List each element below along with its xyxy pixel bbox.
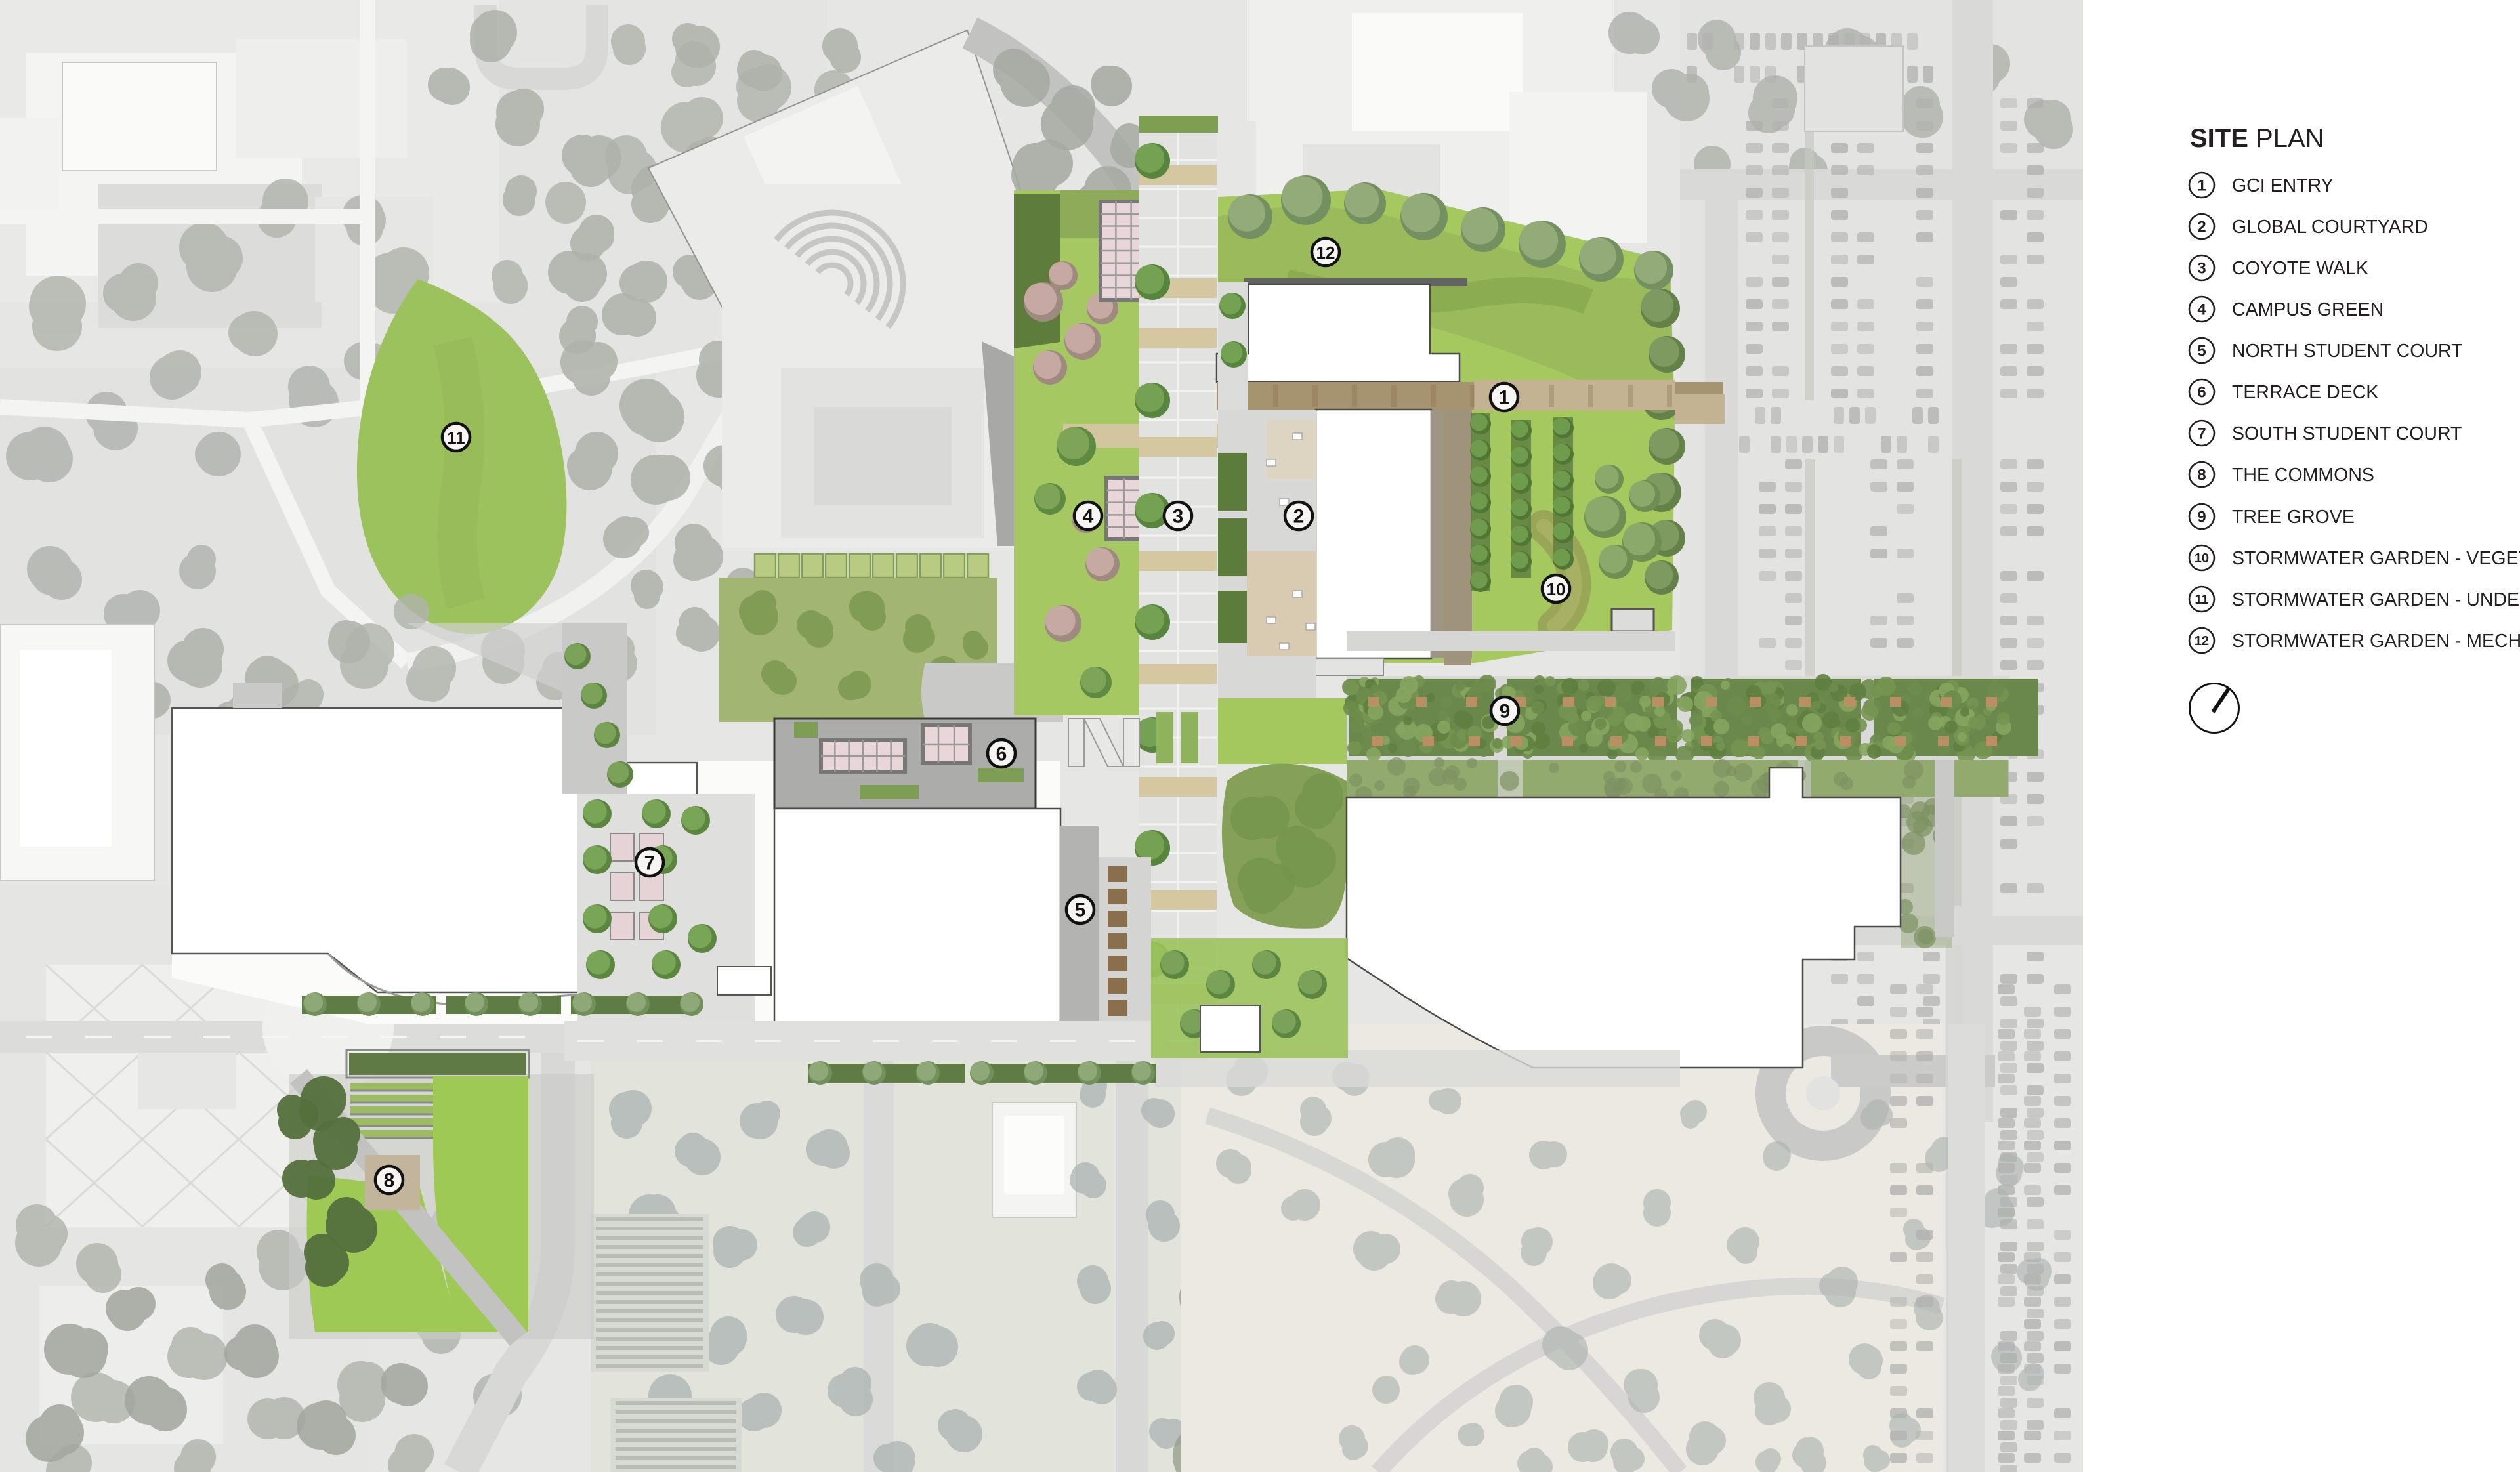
svg-text:7: 7 bbox=[2197, 425, 2206, 443]
svg-text:TERRACE DECK: TERRACE DECK bbox=[2232, 382, 2378, 403]
svg-text:GCI ENTRY: GCI ENTRY bbox=[2232, 175, 2334, 196]
svg-text:9: 9 bbox=[2197, 509, 2206, 526]
svg-text:STORMWATER GARDEN - VEGETATED: STORMWATER GARDEN - VEGETATED bbox=[2232, 548, 2520, 569]
svg-text:7: 7 bbox=[644, 852, 656, 874]
svg-text:10: 10 bbox=[2194, 551, 2209, 566]
svg-text:4: 4 bbox=[1083, 506, 1094, 528]
svg-text:3: 3 bbox=[2197, 260, 2206, 278]
svg-text:1: 1 bbox=[1499, 387, 1510, 409]
svg-text:2: 2 bbox=[1293, 506, 1305, 528]
svg-text:6: 6 bbox=[2197, 384, 2206, 402]
svg-text:9: 9 bbox=[1500, 701, 1511, 723]
svg-text:3: 3 bbox=[1173, 506, 1184, 528]
svg-text:1: 1 bbox=[2197, 177, 2206, 195]
svg-text:SOUTH STUDENT COURT: SOUTH STUDENT COURT bbox=[2232, 423, 2462, 444]
svg-text:8: 8 bbox=[2197, 467, 2206, 484]
svg-text:GLOBAL COURTYARD: GLOBAL COURTYARD bbox=[2232, 217, 2428, 238]
svg-text:11: 11 bbox=[447, 428, 465, 448]
svg-text:10: 10 bbox=[1547, 579, 1566, 599]
svg-text:12: 12 bbox=[2194, 634, 2209, 648]
svg-text:THE COMMONS: THE COMMONS bbox=[2232, 465, 2374, 486]
svg-text:5: 5 bbox=[1075, 900, 1086, 921]
svg-text:COYOTE WALK: COYOTE WALK bbox=[2232, 258, 2368, 279]
svg-text:6: 6 bbox=[996, 744, 1007, 765]
svg-text:12: 12 bbox=[1316, 243, 1335, 263]
svg-text:11: 11 bbox=[2194, 593, 2208, 607]
svg-text:8: 8 bbox=[384, 1170, 395, 1192]
svg-text:4: 4 bbox=[2197, 301, 2206, 319]
svg-text:2: 2 bbox=[2197, 219, 2206, 236]
svg-text:TREE GROVE: TREE GROVE bbox=[2232, 507, 2355, 528]
svg-text:NORTH STUDENT COURT: NORTH STUDENT COURT bbox=[2232, 341, 2463, 362]
svg-text:STORMWATER GARDEN - UNDERGROUN: STORMWATER GARDEN - UNDERGROUND bbox=[2232, 589, 2520, 610]
svg-text:SITE PLAN: SITE PLAN bbox=[2190, 124, 2324, 153]
svg-text:CAMPUS GREEN: CAMPUS GREEN bbox=[2232, 299, 2383, 320]
svg-text:STORMWATER GARDEN - MECHANICAL: STORMWATER GARDEN - MECHANICAL bbox=[2232, 631, 2520, 652]
svg-text:5: 5 bbox=[2197, 343, 2206, 360]
